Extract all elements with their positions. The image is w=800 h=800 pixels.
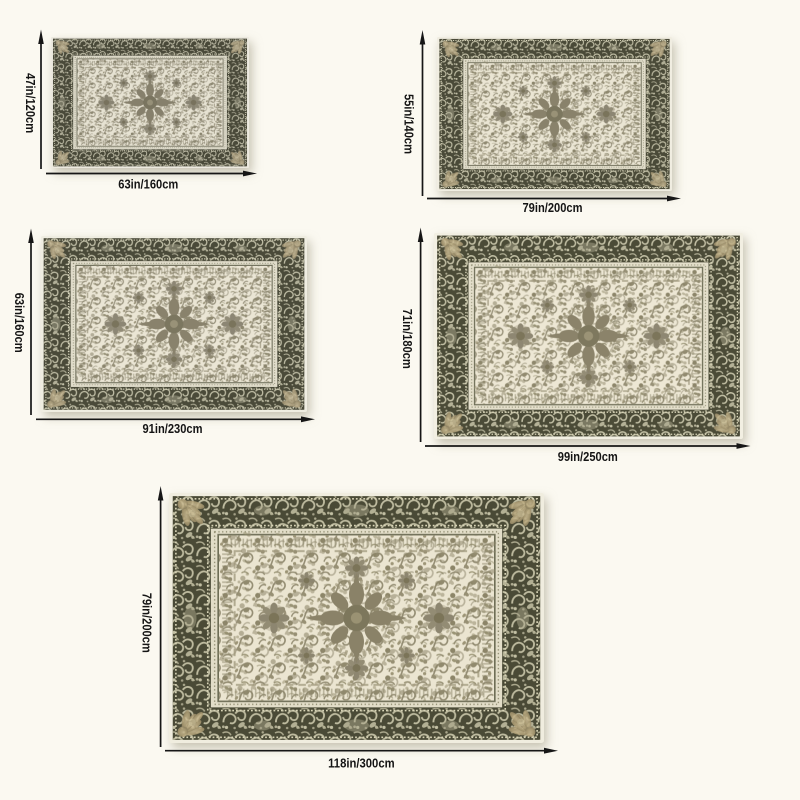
svg-text:79in/200cm: 79in/200cm: [523, 200, 583, 215]
svg-text:118in/300cm: 118in/300cm: [328, 756, 395, 771]
svg-text:47in/120cm: 47in/120cm: [23, 73, 38, 133]
svg-text:71in/180cm: 71in/180cm: [400, 309, 415, 369]
svg-text:91in/230cm: 91in/230cm: [143, 421, 203, 436]
svg-text:55in/140cm: 55in/140cm: [402, 94, 417, 154]
svg-text:79in/200cm: 79in/200cm: [140, 593, 155, 653]
svg-text:63in/160cm: 63in/160cm: [12, 293, 27, 353]
svg-text:63in/160cm: 63in/160cm: [118, 177, 178, 192]
svg-text:99in/250cm: 99in/250cm: [558, 449, 618, 464]
